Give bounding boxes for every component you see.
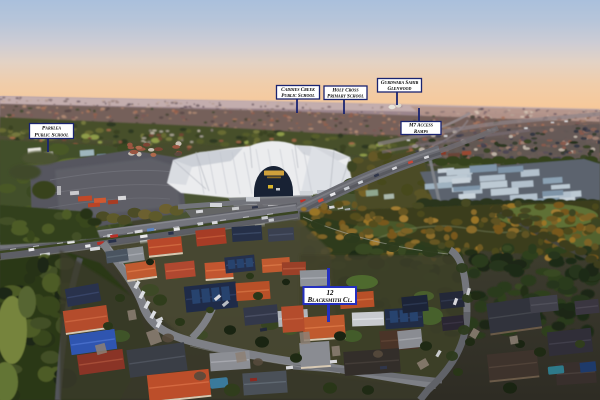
svg-text:Primary School: Primary School [327, 94, 364, 100]
svg-text:Caddies Creek: Caddies Creek [281, 87, 315, 93]
svg-text:Holy Cross: Holy Cross [331, 88, 359, 94]
svg-text:Parklea: Parklea [42, 126, 62, 132]
svg-text:12: 12 [327, 289, 335, 297]
svg-text:Glenwood: Glenwood [388, 86, 412, 92]
svg-text:Gurdwara Sahib: Gurdwara Sahib [381, 80, 419, 86]
svg-text:M7 Access: M7 Access [408, 123, 434, 129]
svg-text:Public School: Public School [281, 93, 315, 99]
svg-text:Public School: Public School [34, 132, 69, 138]
svg-text:Ramps: Ramps [414, 129, 429, 135]
svg-text:Blacksmith Cl.: Blacksmith Cl. [307, 297, 353, 304]
